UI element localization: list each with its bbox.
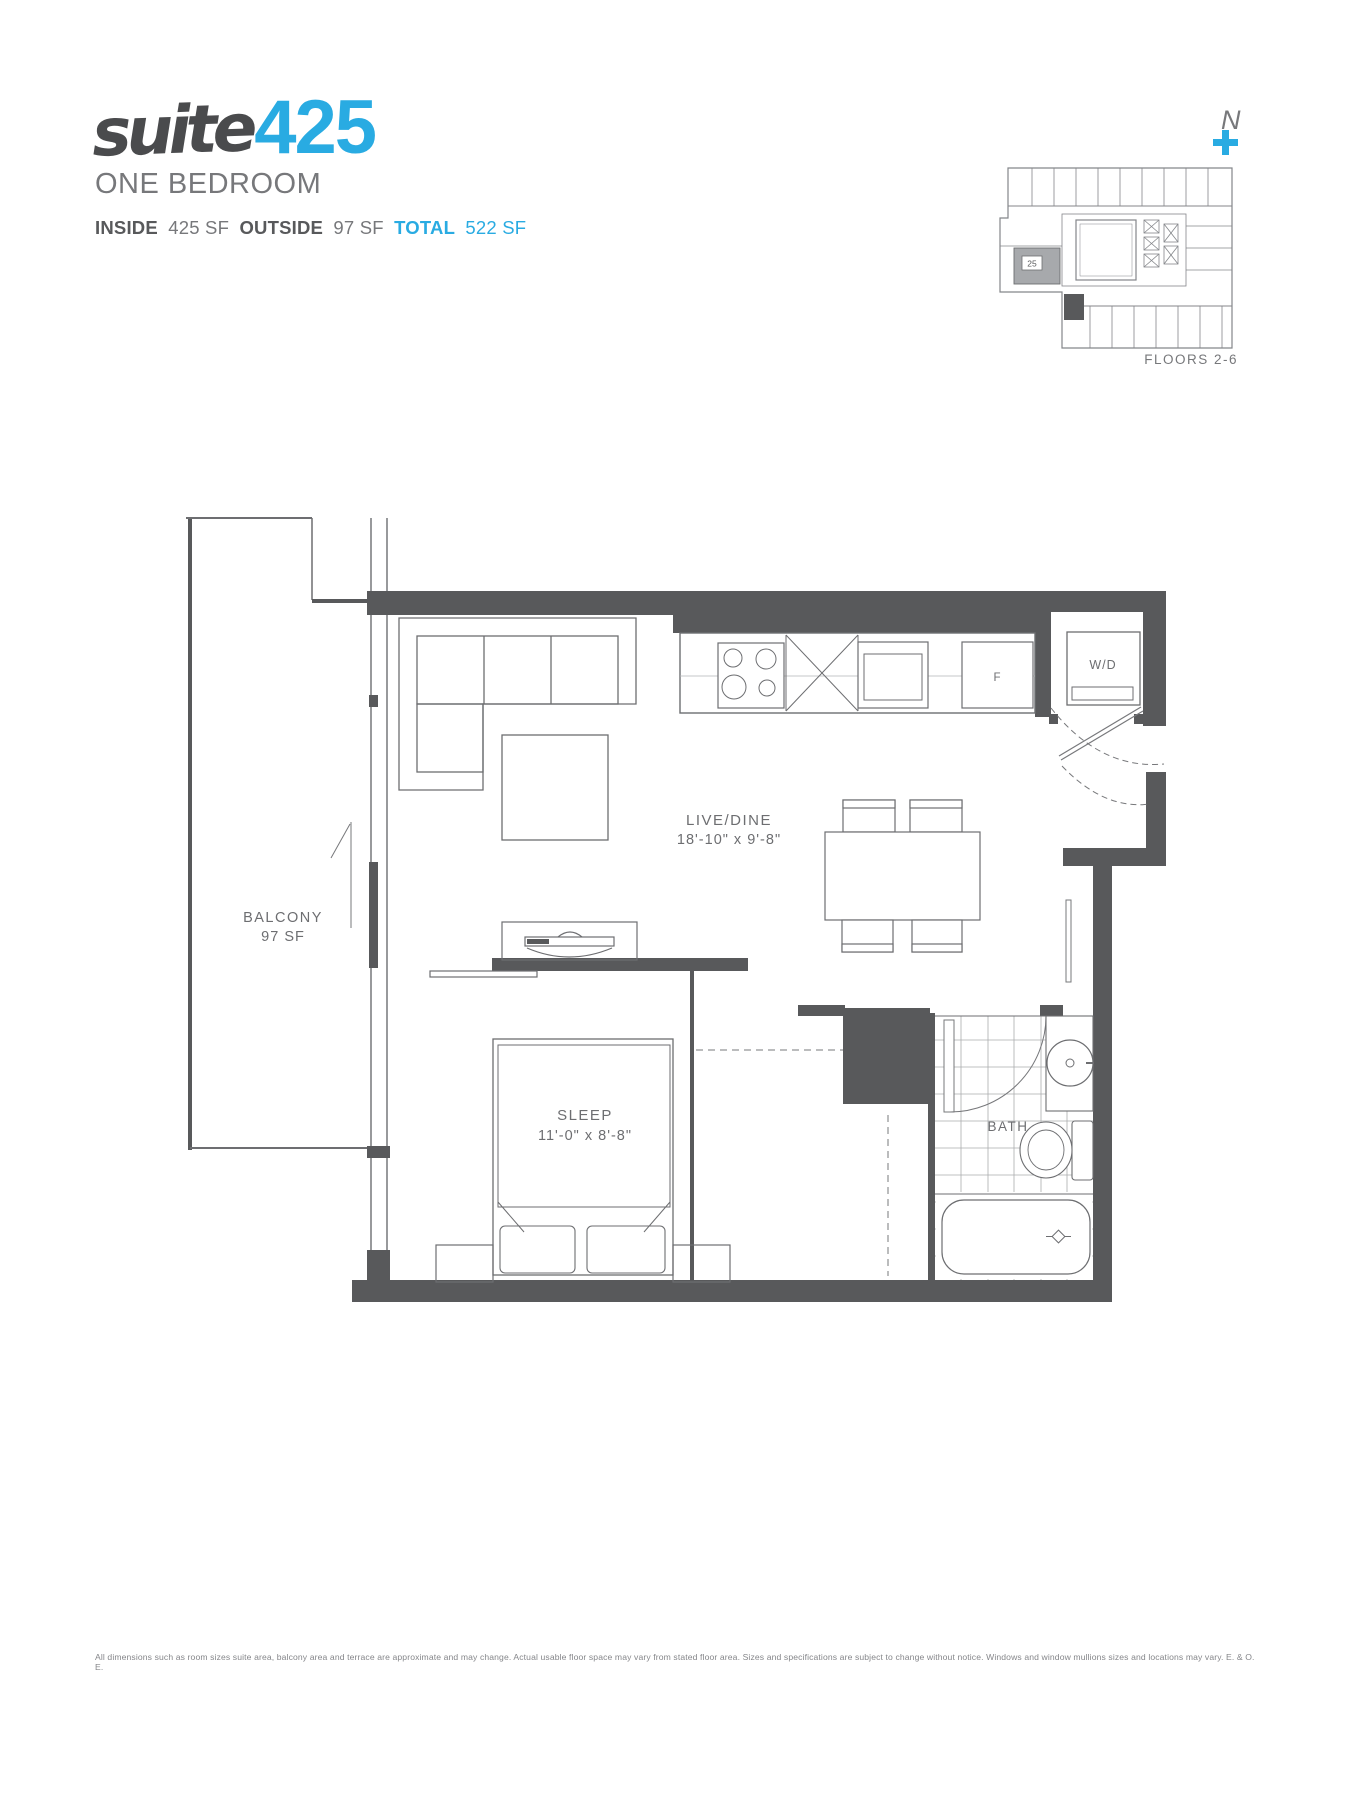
bath: BATH xyxy=(935,1016,1094,1280)
floorplan-page: suite425 ONE BEDROOM INSIDE 425 SF OUTSI… xyxy=(0,0,1350,1800)
dining-chair xyxy=(842,920,893,952)
bath-door xyxy=(944,1016,1046,1112)
sleep-dims: 11'-0" x 8'-8" xyxy=(538,1128,632,1144)
toilet xyxy=(1020,1121,1093,1180)
fridge-label: F xyxy=(993,672,1000,684)
wd-label: W/D xyxy=(1089,658,1116,672)
balcony-label: BALCONY xyxy=(243,910,323,926)
dining-chair xyxy=(843,800,895,832)
wd-closet: W/D xyxy=(1067,632,1140,705)
vanity-sink xyxy=(1046,1016,1094,1111)
bed xyxy=(493,1039,673,1275)
dining-table xyxy=(825,832,980,920)
balcony-area-label: 97 SF xyxy=(261,929,305,945)
bathtub xyxy=(935,1192,1093,1279)
kitchen-sink xyxy=(858,642,928,708)
sleep-label: SLEEP xyxy=(557,1107,613,1124)
balcony: BALCONY 97 SF xyxy=(186,518,388,1150)
key-plan: 25 xyxy=(1000,168,1232,348)
stair-core xyxy=(1064,294,1084,320)
stove xyxy=(718,643,784,708)
legal-disclaimer: All dimensions such as room sizes suite … xyxy=(95,1652,1265,1672)
key-plan-highlight-unit: 25 xyxy=(1014,248,1060,284)
bedroom-sliding-door xyxy=(430,971,537,977)
live-dine-label: LIVE/DINE xyxy=(686,812,772,829)
window-wall xyxy=(367,518,390,1302)
bath-label: BATH xyxy=(987,1119,1028,1134)
sofa xyxy=(399,618,636,790)
fridge: F xyxy=(962,642,1033,708)
live-dine-dims: 18'-10" x 9'-8" xyxy=(677,832,781,848)
coffee-table xyxy=(502,735,608,840)
highlight-unit-label: 25 xyxy=(1027,259,1037,269)
tv-console xyxy=(502,922,637,960)
elevator-bank xyxy=(1144,220,1178,267)
dining-chair xyxy=(910,800,962,832)
nightstand-left xyxy=(436,1245,493,1282)
floorplan-svg: 25 N BALCONY 97 SF xyxy=(0,0,1350,1800)
kitchen: F xyxy=(680,633,1035,713)
dining-set xyxy=(825,800,980,952)
nightstand-right xyxy=(673,1245,730,1282)
dining-chair xyxy=(912,920,962,952)
north-compass: N xyxy=(1213,105,1241,155)
